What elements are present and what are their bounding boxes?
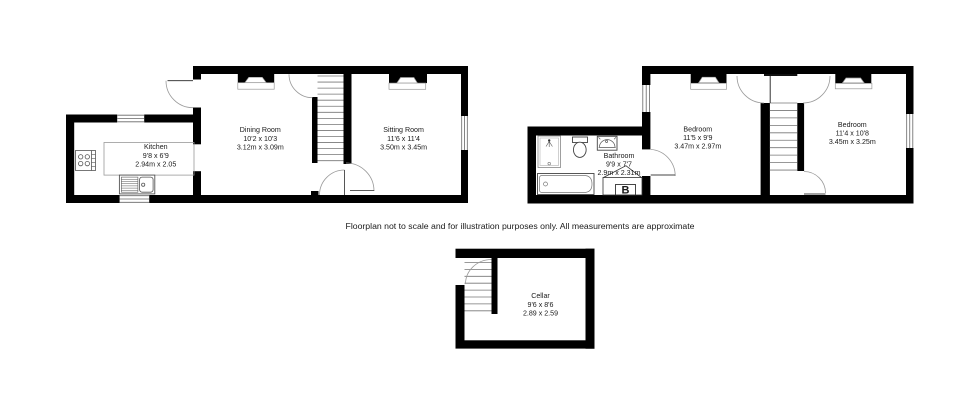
svg-text:Floorplan not to scale and for: Floorplan not to scale and for illustrat… — [346, 221, 695, 231]
svg-text:Bedroom: Bedroom — [838, 121, 867, 129]
svg-text:Cellar: Cellar — [531, 292, 550, 300]
svg-text:Bathroom: Bathroom — [604, 152, 635, 160]
svg-text:11'4 x 10'8: 11'4 x 10'8 — [836, 130, 869, 138]
svg-text:9'6 x 8'6: 9'6 x 8'6 — [528, 301, 554, 309]
svg-text:Bedroom: Bedroom — [683, 125, 712, 133]
svg-text:Dining Room: Dining Room — [240, 126, 281, 134]
svg-text:3.50m x 3.45m: 3.50m x 3.45m — [380, 144, 427, 152]
svg-text:3.47m x 2.97m: 3.47m x 2.97m — [674, 143, 721, 151]
svg-text:B: B — [622, 185, 630, 197]
svg-text:2.94m x 2.05: 2.94m x 2.05 — [135, 161, 176, 169]
svg-text:2.89 x 2.59: 2.89 x 2.59 — [523, 310, 558, 318]
svg-text:11'5 x 9'9: 11'5 x 9'9 — [683, 134, 712, 142]
svg-text:3.45m x 3.25m: 3.45m x 3.25m — [829, 138, 876, 146]
svg-text:3.12m x 3.09m: 3.12m x 3.09m — [237, 144, 284, 152]
svg-text:9'9 x 7'7: 9'9 x 7'7 — [606, 160, 632, 168]
svg-text:9'8 x 6'9: 9'8 x 6'9 — [143, 152, 169, 160]
svg-text:Kitchen: Kitchen — [144, 143, 168, 151]
svg-text:11'6 x 11'4: 11'6 x 11'4 — [387, 135, 420, 143]
svg-text:2.9m x 2.31m: 2.9m x 2.31m — [598, 169, 641, 177]
svg-text:Sitting Room: Sitting Room — [383, 126, 424, 134]
svg-text:10'2 x 10'3: 10'2 x 10'3 — [243, 135, 277, 143]
